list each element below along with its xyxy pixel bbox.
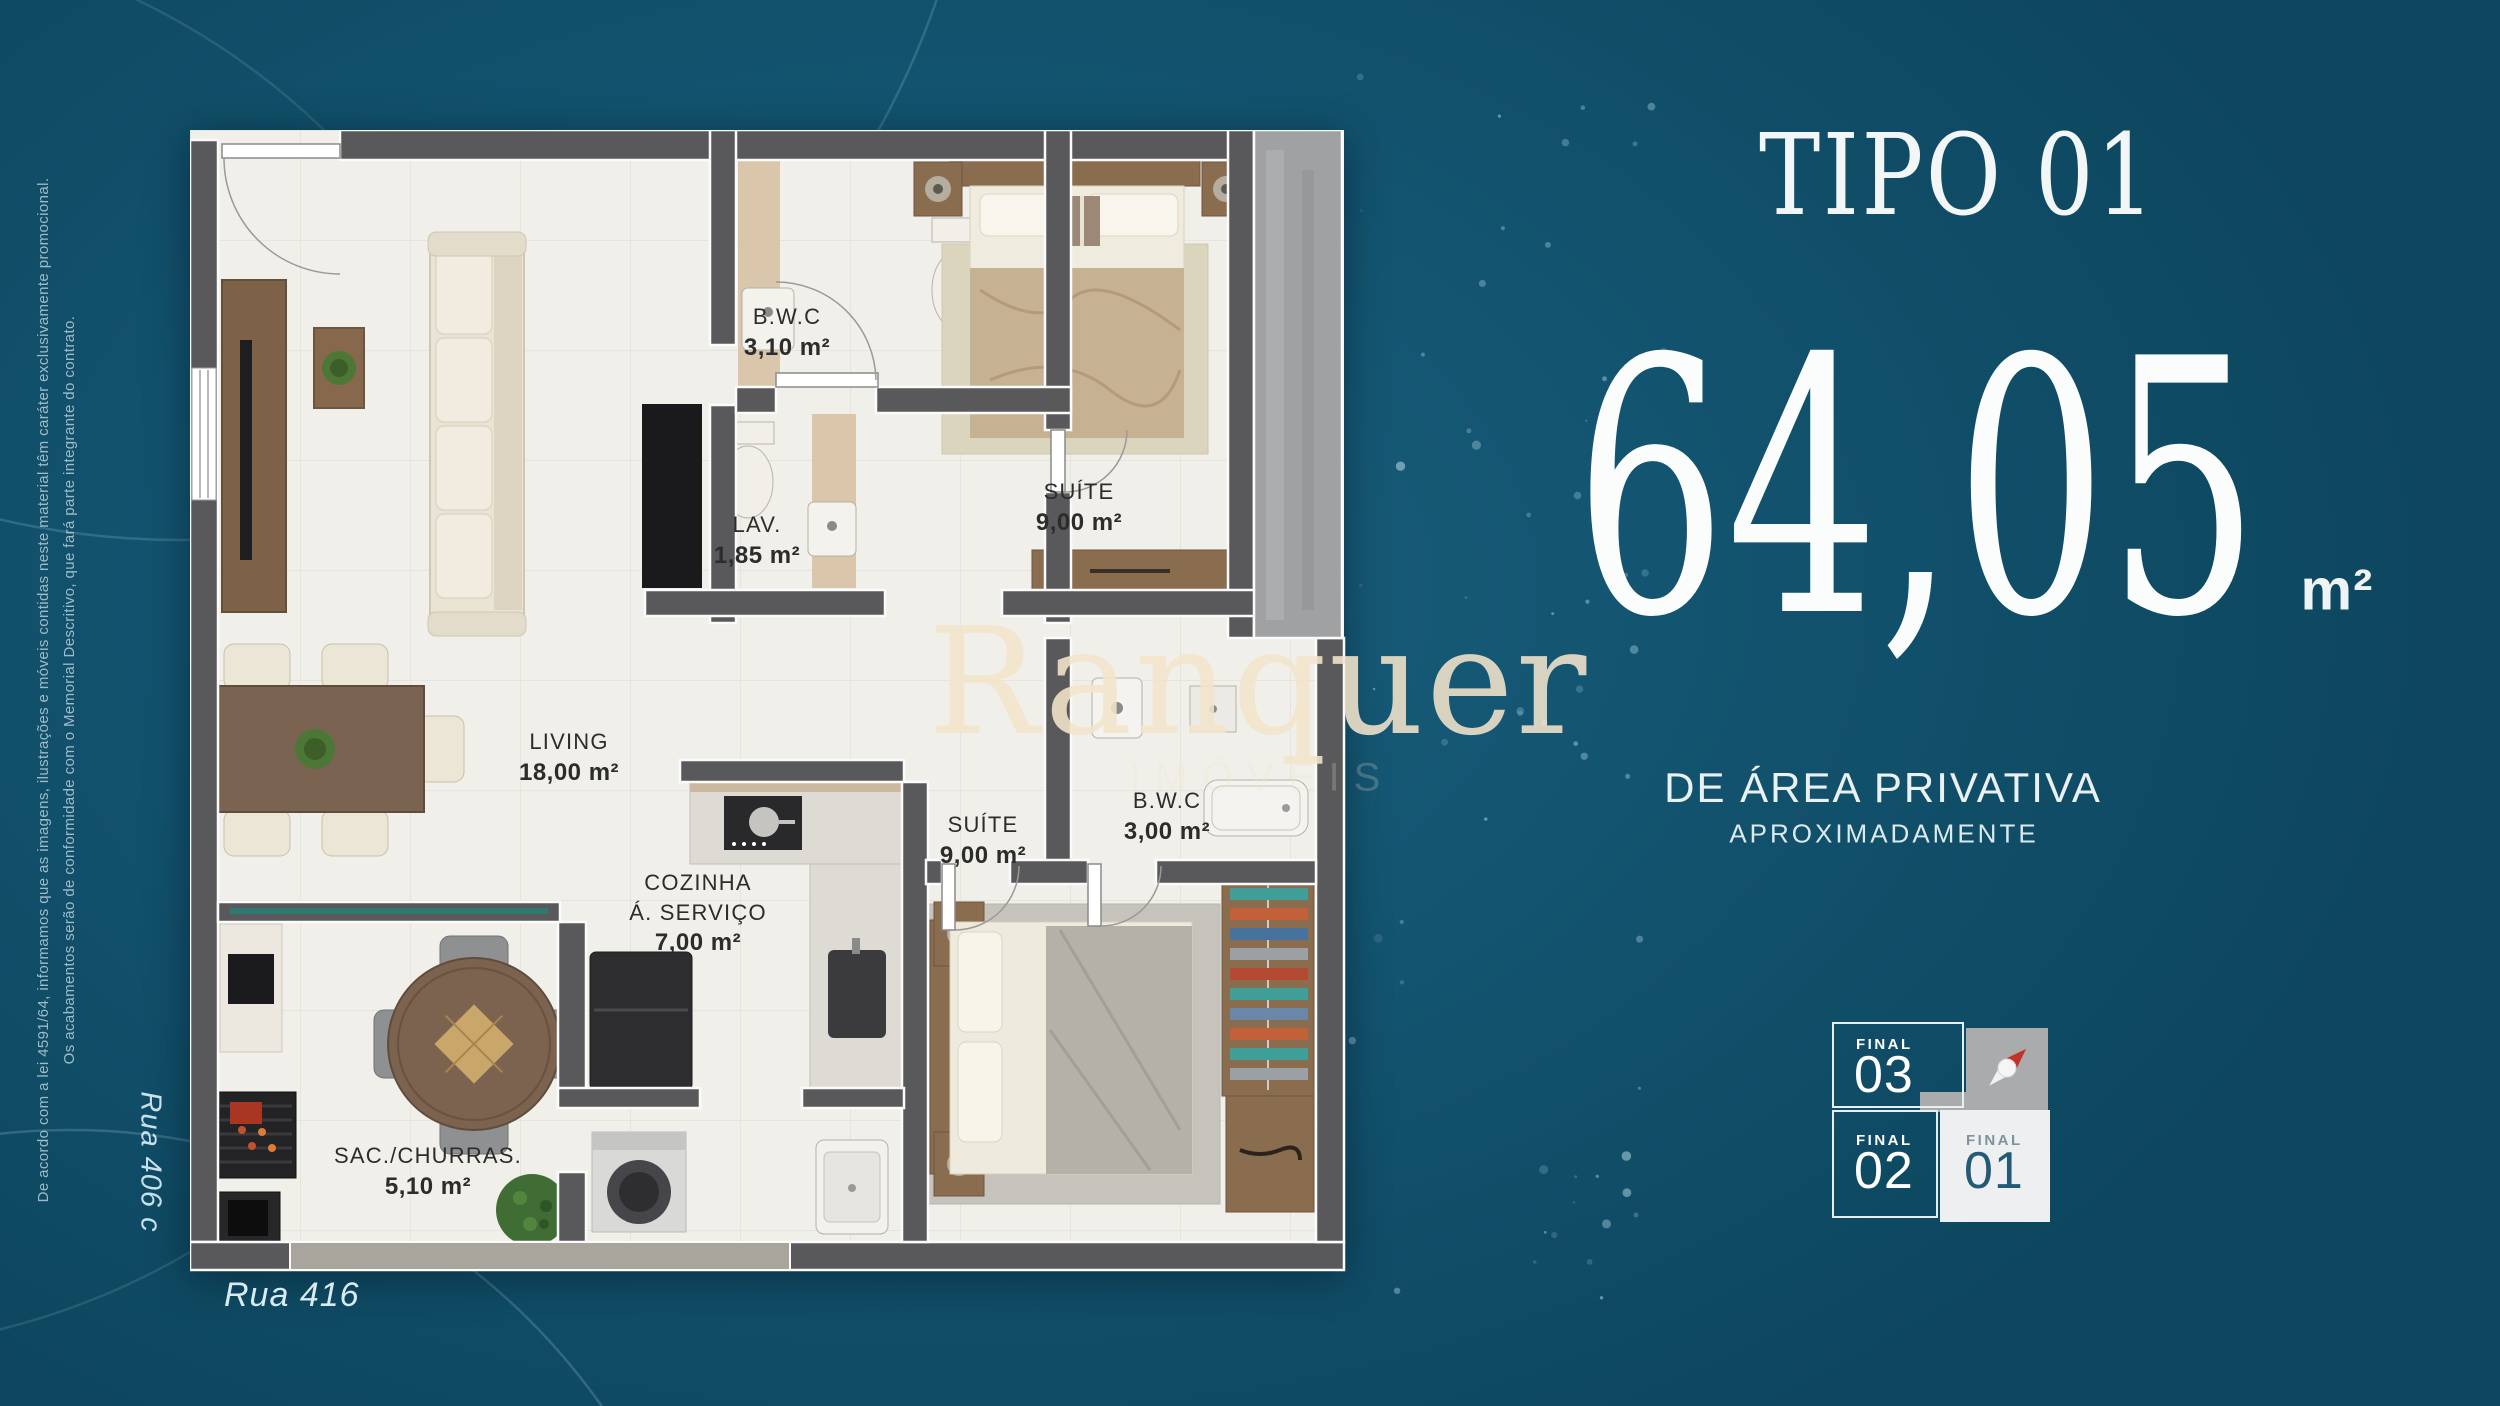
balcony-counter: [220, 924, 282, 1052]
dark-niche: [642, 404, 702, 588]
tv-console: [222, 280, 286, 612]
brand-watermark: Ranquer: [928, 596, 1589, 768]
suite-mid-furniture: [928, 902, 1220, 1204]
key-plan-unit-final-01-highlighted: FINAL 01: [1940, 1110, 2050, 1222]
area-caption-sub: APROXIMADAMENTE: [1729, 819, 2038, 850]
key-plan-unit-final-03: FINAL 03: [1832, 1022, 1964, 1108]
balcony-railing: [290, 1242, 790, 1270]
coffee-table: [314, 328, 364, 408]
fridge: [590, 952, 692, 1090]
room-label-sac: SAC./CHURRAS. 5,10 m²: [334, 1141, 522, 1203]
legal-disclaimer: De acordo com a lei 4591/64, informamos …: [31, 178, 83, 1203]
brand-watermark-sub: IMÓVEIS: [1130, 756, 1395, 801]
washing-machine: [592, 1132, 686, 1232]
wardrobe: [1222, 878, 1314, 1212]
balcony-cabinet: [218, 1192, 280, 1246]
room-label-lav: LAV. 1,85 m²: [714, 510, 800, 572]
street-label-left: Rua 406 c: [134, 1091, 167, 1232]
area-caption: DE ÁREA PRIVATIVA: [1664, 764, 2102, 812]
concrete-strip: [1254, 130, 1342, 638]
glass-door-line: [230, 908, 548, 914]
laundry-sink: [816, 1140, 888, 1234]
unit-type-title: TIPO 01: [1715, 120, 2200, 232]
barbecue-grill: [216, 1092, 296, 1178]
room-label-suite-top: SUÍTE 9,00 m²: [1036, 477, 1122, 539]
room-label-living: LIVING 18,00 m²: [519, 727, 619, 789]
marketing-page: { "right_panel": { "type_label": "TIPO 0…: [0, 0, 2500, 1406]
compass-north-icon: [1966, 1028, 2048, 1112]
key-plan: FINAL 03 FINAL 02 FINAL 01: [1830, 1020, 2056, 1226]
living-window: [192, 368, 216, 500]
street-label-bottom: Rua 416: [224, 1276, 360, 1315]
key-plan-unit-final-02: FINAL 02: [1832, 1110, 1938, 1218]
room-label-cozinha: COZINHA Á. SERVIÇO 7,00 m²: [629, 868, 767, 960]
room-label-bwc-top: B.W.C 3,10 m²: [744, 302, 830, 364]
room-label-suite-mid: SUÍTE 9,00 m²: [940, 810, 1026, 872]
area-unit: m²: [2301, 557, 2374, 624]
sofa: [428, 232, 526, 636]
